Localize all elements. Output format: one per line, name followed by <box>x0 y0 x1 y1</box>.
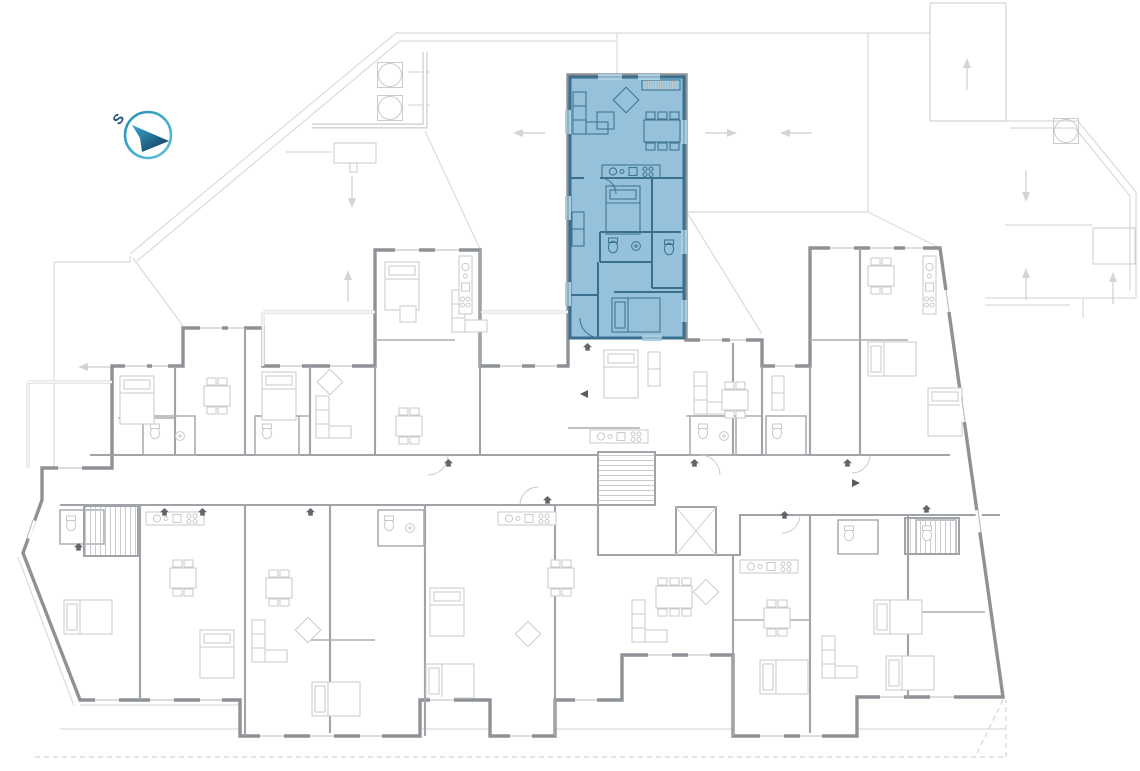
bed-icon <box>760 660 808 694</box>
sink-icon <box>720 432 729 441</box>
stairs-center <box>598 452 655 505</box>
skylight-icon <box>1054 119 1079 144</box>
bed-icon <box>385 262 419 310</box>
roof-grate <box>334 143 376 163</box>
slope-arrow-left-icon <box>780 129 812 137</box>
vent-hatch <box>642 80 680 90</box>
skylight-icon <box>378 63 403 88</box>
bed-icon <box>426 664 474 698</box>
bed-icon <box>886 656 934 690</box>
toilet-icon <box>66 516 75 531</box>
coffee-table-icon <box>400 306 416 322</box>
bed-icon <box>312 682 360 716</box>
toilet-icon <box>698 424 707 439</box>
bed-icon <box>430 588 464 636</box>
compass: S <box>109 110 171 158</box>
roof-drain <box>350 163 357 172</box>
toilet-icon <box>844 526 853 541</box>
toilet-icon <box>772 424 781 439</box>
kitchen-counter-icon <box>459 256 472 314</box>
terrace-top-edge <box>130 33 930 254</box>
slope-arrow-up-icon <box>344 270 352 302</box>
slope-arrow-down-icon <box>1022 170 1030 202</box>
dining-table-icon <box>656 578 692 616</box>
bed-icon <box>200 630 234 678</box>
toilet-icon <box>922 526 931 541</box>
sink-icon <box>406 524 415 533</box>
kitchen-counter-icon <box>498 512 556 525</box>
roof-label-leaders <box>286 72 430 152</box>
bed-icon <box>604 350 638 398</box>
bed-icon <box>120 376 154 424</box>
kitchen-counter-icon <box>146 512 204 525</box>
roof-hatch-right <box>1093 228 1135 264</box>
building-outline <box>23 75 1003 736</box>
slope-arrow-down-icon <box>348 176 356 208</box>
sink-icon <box>176 432 185 441</box>
toilet-icon <box>384 516 393 531</box>
kitchen-counter-icon <box>590 430 648 443</box>
bed-icon <box>64 600 112 634</box>
compass-south-label: S <box>109 110 127 127</box>
wardrobe-icon <box>772 376 784 410</box>
bed-icon <box>868 342 916 376</box>
kitchen-counter-icon <box>740 560 798 573</box>
compass-arrow-icon <box>132 125 169 152</box>
slope-arrow-left-icon <box>78 363 110 371</box>
bed-icon <box>262 372 296 420</box>
kitchen-counter-icon <box>923 256 936 314</box>
bed-icon <box>874 600 922 634</box>
slope-arrow-up-icon <box>1109 272 1117 304</box>
slope-arrow-right-icon <box>705 129 737 137</box>
slope-arrow-up-icon <box>963 58 971 90</box>
skylight-icon <box>378 96 403 121</box>
wardrobe-icon <box>648 352 660 386</box>
toilet-icon <box>150 424 159 439</box>
bed-icon <box>928 388 962 436</box>
floor-plan-page: S <box>0 0 1140 771</box>
slope-arrow-left-icon <box>513 129 545 137</box>
floor-plan-canvas: S <box>0 0 1140 771</box>
slope-arrow-up-icon <box>1022 268 1030 300</box>
stairs-left <box>84 506 138 556</box>
highlighted-unit[interactable] <box>568 77 684 338</box>
toilet-icon <box>262 424 271 439</box>
